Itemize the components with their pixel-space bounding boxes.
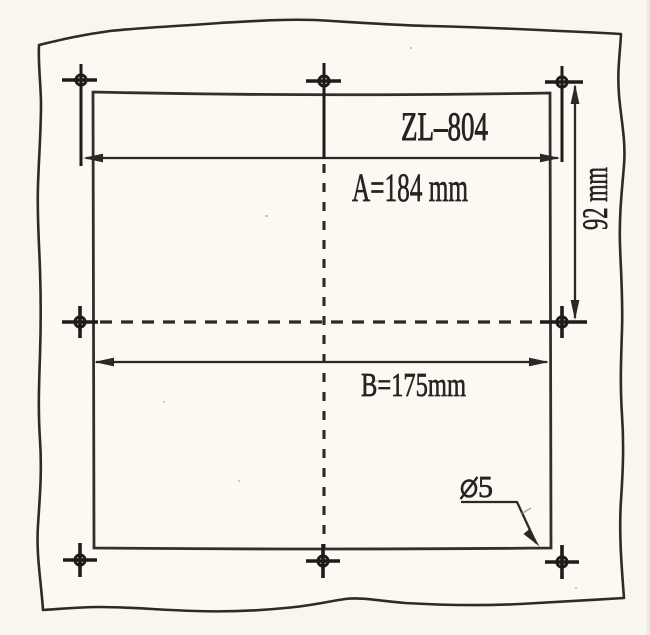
svg-text:5: 5 bbox=[478, 469, 493, 504]
svg-text:92 mm: 92 mm bbox=[575, 167, 615, 230]
svg-text:B=175mm: B=175mm bbox=[361, 367, 466, 404]
svg-text:A=184 mm: A=184 mm bbox=[352, 165, 468, 210]
svg-text:ZL–804: ZL–804 bbox=[401, 104, 488, 149]
